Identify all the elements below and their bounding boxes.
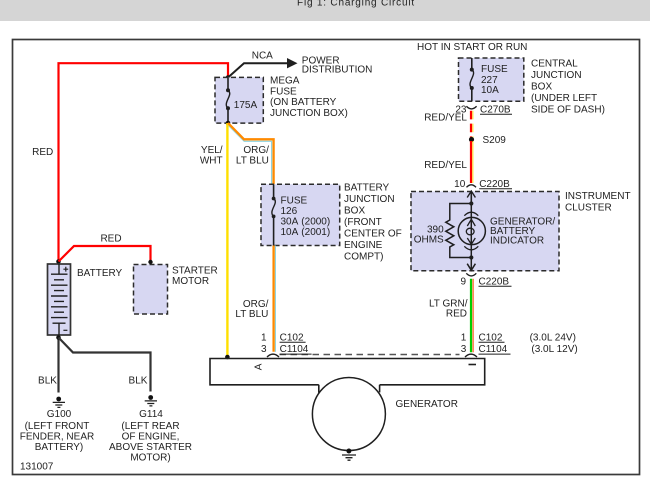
svg-text:131007: 131007 <box>20 462 54 473</box>
svg-text:RED: RED <box>32 147 53 158</box>
svg-text:1: 1 <box>261 332 267 343</box>
svg-text:10: 10 <box>454 179 466 190</box>
svg-text:175A: 175A <box>234 100 258 111</box>
svg-text:G114: G114 <box>139 409 163 420</box>
svg-text:3: 3 <box>461 344 467 355</box>
svg-text:G100: G100 <box>47 409 72 420</box>
svg-text:(3.0L 12V): (3.0L 12V) <box>531 344 577 355</box>
svg-text:NCA: NCA <box>252 51 273 62</box>
svg-text:YEL/WHT: YEL/WHT <box>200 145 223 166</box>
svg-text:BLK: BLK <box>38 375 57 386</box>
svg-text:BATTERY: BATTERY <box>77 268 123 279</box>
svg-text:C102: C102 <box>479 332 503 343</box>
svg-text:HOT IN START OR RUN: HOT IN START OR RUN <box>417 42 527 53</box>
svg-text:BLK: BLK <box>129 375 148 386</box>
svg-text:RED/YEL: RED/YEL <box>424 160 467 171</box>
svg-text:1: 1 <box>461 332 467 343</box>
svg-text:3: 3 <box>261 344 267 355</box>
svg-text:(3.0L 24V): (3.0L 24V) <box>530 332 576 343</box>
svg-text:Fig 1: Charging Circuit: Fig 1: Charging Circuit <box>297 0 415 9</box>
svg-text:9: 9 <box>460 277 466 288</box>
svg-text:GENERATOR: GENERATOR <box>396 399 458 410</box>
svg-text:RED: RED <box>100 234 121 245</box>
svg-text:C102: C102 <box>280 332 304 343</box>
svg-text:RED/YEL: RED/YEL <box>424 113 467 124</box>
svg-text:A: A <box>254 363 265 370</box>
svg-text:S209: S209 <box>483 135 507 146</box>
svg-text:C1104: C1104 <box>280 344 309 355</box>
svg-text:C1104: C1104 <box>479 344 508 355</box>
